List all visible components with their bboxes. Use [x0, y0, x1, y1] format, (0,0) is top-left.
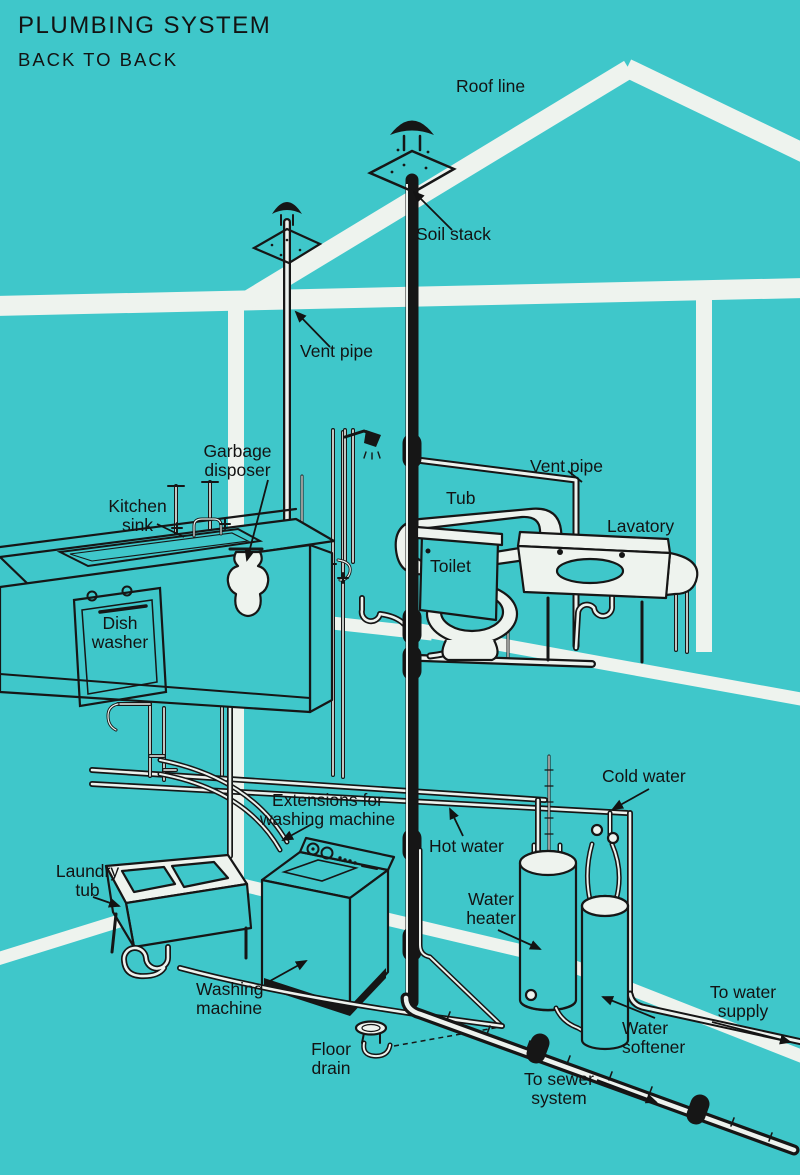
counter-end-panel: [310, 545, 332, 712]
label-cold-water: Cold water: [602, 767, 686, 786]
ceiling-line: [0, 288, 800, 306]
label-water-softener: Water softener: [622, 1019, 685, 1056]
shower-head: [364, 430, 381, 447]
lavatory-trap: [576, 594, 612, 648]
label-toilet: Toilet: [430, 557, 471, 576]
label-lavatory: Lavatory: [607, 517, 674, 536]
label-to-water-supply: To water supply: [703, 983, 783, 1020]
plumbing-diagram-page: PLUMBING SYSTEM BACK TO BACK Roof line S…: [0, 0, 800, 1175]
label-extensions: Extensions for washing machine: [240, 791, 415, 828]
label-garbage-disposer: Garbage disposer: [180, 442, 295, 479]
label-roof-line: Roof line: [456, 77, 525, 96]
page-subtitle: BACK TO BACK: [18, 49, 271, 71]
label-tub: Tub: [446, 489, 476, 508]
label-to-sewer-system: To sewer system: [518, 1070, 600, 1107]
laundry-faucet-spout: [108, 704, 118, 730]
label-floor-drain: Floor drain: [296, 1040, 366, 1077]
hot-water-arrow: [450, 809, 463, 836]
stack-vent-cap: [390, 121, 434, 136]
plumbing-illustration: [0, 0, 800, 1175]
label-dish-washer: Dish washer: [74, 614, 166, 651]
label-hot-water: Hot water: [429, 837, 504, 856]
cold-water-arrow: [613, 789, 649, 809]
label-washing-machine: Washing machine: [196, 980, 263, 1017]
vent-cap: [272, 202, 302, 214]
label-water-heater: Water heater: [456, 890, 526, 927]
page-title: PLUMBING SYSTEM: [18, 12, 271, 40]
roof-line-left: [246, 69, 629, 301]
label-kitchen-sink: Kitchen sink: [95, 497, 180, 534]
label-laundry-tub: Laundry tub: [45, 862, 130, 899]
lavatory-figure: [518, 532, 697, 662]
roof-line-right: [627, 68, 800, 155]
label-soil-stack: Soil stack: [416, 225, 491, 244]
label-vent-pipe-upper: Vent pipe: [300, 342, 373, 361]
title-block: PLUMBING SYSTEM BACK TO BACK: [18, 12, 271, 71]
label-vent-pipe-bathroom: Vent pipe: [530, 457, 603, 476]
toilet-tank: [420, 534, 498, 620]
lavatory-bowl: [557, 559, 623, 583]
